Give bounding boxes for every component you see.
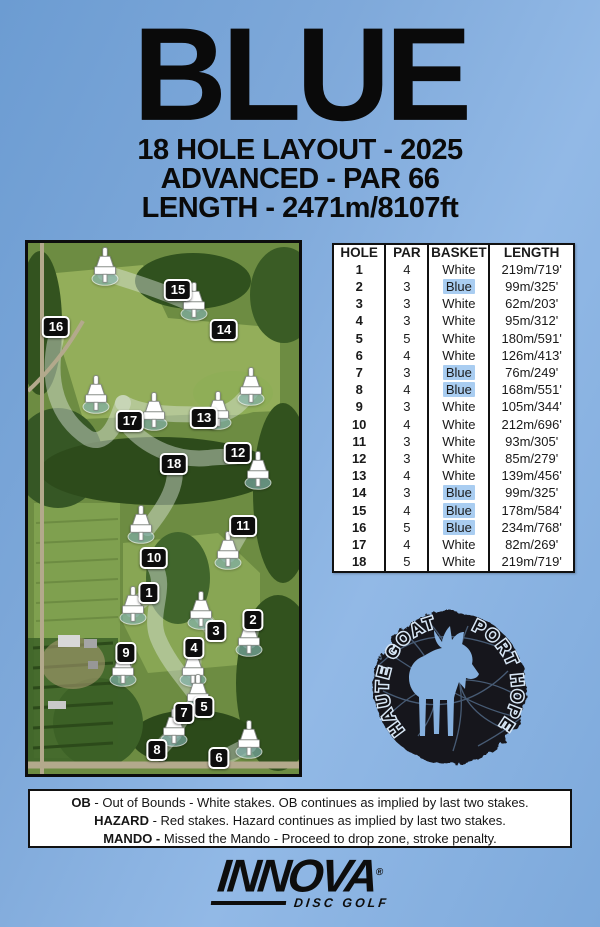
- col-header-length: LENGTH: [489, 245, 573, 262]
- hole-marker: 5: [193, 696, 214, 718]
- cell-basket: White: [428, 433, 489, 450]
- cell-basket: White: [428, 296, 489, 313]
- rule-ob-text: - Out of Bounds - White stakes. OB conti…: [91, 795, 529, 810]
- cell-length: 178m/584': [489, 502, 573, 519]
- hole-marker: 3: [205, 620, 226, 642]
- subtitle-length: LENGTH - 2471m/8107ft: [0, 194, 600, 223]
- cell-hole: 18: [334, 554, 385, 571]
- cell-par: 4: [385, 502, 428, 519]
- basket-icon: [126, 505, 156, 545]
- table-row: 8 4 Blue 168m/551': [334, 382, 573, 399]
- cell-length: 99m/325': [489, 279, 573, 296]
- registered-mark: ®: [375, 867, 384, 878]
- header: BLUE 18 HOLE LAYOUT - 2025 ADVANCED - PA…: [0, 22, 600, 223]
- cell-hole: 5: [334, 330, 385, 347]
- cell-length: 62m/203': [489, 296, 573, 313]
- cell-par: 5: [385, 330, 428, 347]
- poster: BLUE 18 HOLE LAYOUT - 2025 ADVANCED - PA…: [0, 0, 600, 927]
- hole-marker: 4: [183, 637, 204, 659]
- cell-basket: Blue: [428, 365, 489, 382]
- table-row: 15 4 Blue 178m/584': [334, 502, 573, 519]
- cell-par: 4: [385, 348, 428, 365]
- brand-tagline: DISC GOLF: [293, 896, 390, 910]
- hole-marker: 15: [164, 279, 192, 301]
- cell-par: 3: [385, 313, 428, 330]
- hole-marker: 6: [208, 747, 229, 769]
- cell-par: 4: [385, 382, 428, 399]
- cell-hole: 8: [334, 382, 385, 399]
- cell-hole: 2: [334, 279, 385, 296]
- cell-hole: 11: [334, 433, 385, 450]
- table-row: 7 3 Blue 76m/249': [334, 365, 573, 382]
- cell-basket: White: [428, 554, 489, 571]
- table-row: 6 4 White 126m/413': [334, 348, 573, 365]
- hole-marker: 17: [116, 410, 144, 432]
- cell-hole: 3: [334, 296, 385, 313]
- hole-marker: 14: [210, 319, 238, 341]
- hole-marker: 12: [224, 442, 252, 464]
- cell-length: 76m/249': [489, 365, 573, 382]
- col-header-par: PAR: [385, 245, 428, 262]
- subtitle-par: ADVANCED - PAR 66: [0, 165, 600, 194]
- cell-hole: 17: [334, 537, 385, 554]
- cell-par: 3: [385, 296, 428, 313]
- cell-par: 5: [385, 519, 428, 536]
- cell-basket: Blue: [428, 502, 489, 519]
- cell-par: 4: [385, 262, 428, 279]
- col-header-hole: HOLE: [334, 245, 385, 262]
- cell-basket: White: [428, 262, 489, 279]
- cell-par: 3: [385, 399, 428, 416]
- cell-length: 82m/269': [489, 537, 573, 554]
- cell-hole: 6: [334, 348, 385, 365]
- table-row: 18 5 White 219m/719': [334, 554, 573, 571]
- table-header-row: HOLE PAR BASKET LENGTH: [334, 245, 573, 262]
- table-row: 3 3 White 62m/203': [334, 296, 573, 313]
- cell-basket: White: [428, 348, 489, 365]
- table-row: 9 3 White 105m/344': [334, 399, 573, 416]
- map-overlay: 161514171312181110123495786: [28, 243, 299, 774]
- rule-mando-label: MANDO -: [103, 831, 160, 846]
- col-header-basket: BASKET: [428, 245, 489, 262]
- hole-marker: 13: [190, 407, 218, 429]
- rule-hazard-text: - Red stakes. Hazard continues as implie…: [149, 813, 506, 828]
- hole-marker: 11: [229, 515, 257, 537]
- rule-ob-label: OB: [71, 795, 91, 810]
- basket-icon: [234, 720, 264, 760]
- rule-ob: OB - Out of Bounds - White stakes. OB co…: [30, 794, 570, 812]
- goat-logo: HAUTE GOAT PORT HOPE: [358, 596, 543, 781]
- rule-mando-text: Missed the Mando - Proceed to drop zone,…: [160, 831, 497, 846]
- cell-basket: Blue: [428, 382, 489, 399]
- cell-par: 3: [385, 279, 428, 296]
- cell-hole: 16: [334, 519, 385, 536]
- hole-marker: 8: [146, 739, 167, 761]
- table-row: 1 4 White 219m/719': [334, 262, 573, 279]
- rule-hazard-label: HAZARD: [94, 813, 149, 828]
- course-table: HOLE PAR BASKET LENGTH 1 4 White 219m/71…: [332, 243, 575, 573]
- table-row: 12 3 White 85m/279': [334, 451, 573, 468]
- cell-hole: 14: [334, 485, 385, 502]
- cell-hole: 1: [334, 262, 385, 279]
- hole-marker: 9: [115, 642, 136, 664]
- hole-marker: 16: [42, 316, 70, 338]
- cell-length: 212m/696': [489, 416, 573, 433]
- cell-length: 139m/456': [489, 468, 573, 485]
- innova-wordmark: INNOVA®: [215, 853, 384, 895]
- cell-hole: 13: [334, 468, 385, 485]
- cell-basket: White: [428, 313, 489, 330]
- cell-basket: Blue: [428, 279, 489, 296]
- basket-icon: [236, 367, 266, 407]
- cell-hole: 15: [334, 502, 385, 519]
- table-row: 4 3 White 95m/312': [334, 313, 573, 330]
- brand-name: INNOVA: [215, 849, 378, 901]
- hole-marker: 2: [242, 609, 263, 631]
- course-table-body: 1 4 White 219m/719' 2 3 Blue 99m/325' 3 …: [334, 262, 573, 571]
- table-row: 5 5 White 180m/591': [334, 330, 573, 347]
- rule-mando: MANDO - Missed the Mando - Proceed to dr…: [30, 830, 570, 848]
- cell-length: 219m/719': [489, 554, 573, 571]
- table-row: 13 4 White 139m/456': [334, 468, 573, 485]
- cell-length: 126m/413': [489, 348, 573, 365]
- cell-length: 105m/344': [489, 399, 573, 416]
- cell-hole: 9: [334, 399, 385, 416]
- cell-basket: Blue: [428, 485, 489, 502]
- cell-basket: Blue: [428, 519, 489, 536]
- hole-marker: 1: [138, 582, 159, 604]
- cell-length: 219m/719': [489, 262, 573, 279]
- cell-par: 4: [385, 537, 428, 554]
- cell-par: 3: [385, 485, 428, 502]
- table-row: 17 4 White 82m/269': [334, 537, 573, 554]
- cell-hole: 7: [334, 365, 385, 382]
- cell-basket: White: [428, 537, 489, 554]
- cell-basket: White: [428, 416, 489, 433]
- innova-underline: [211, 901, 286, 905]
- basket-icon: [81, 375, 111, 415]
- cell-par: 4: [385, 416, 428, 433]
- cell-hole: 12: [334, 451, 385, 468]
- cell-basket: White: [428, 399, 489, 416]
- cell-par: 3: [385, 365, 428, 382]
- course-map: 161514171312181110123495786: [25, 240, 302, 777]
- cell-length: 234m/768': [489, 519, 573, 536]
- rules-box: OB - Out of Bounds - White stakes. OB co…: [28, 789, 572, 848]
- cell-par: 5: [385, 554, 428, 571]
- rule-hazard: HAZARD - Red stakes. Hazard continues as…: [30, 812, 570, 830]
- cell-length: 95m/312': [489, 313, 573, 330]
- cell-basket: White: [428, 330, 489, 347]
- cell-length: 168m/551': [489, 382, 573, 399]
- table-row: 14 3 Blue 99m/325': [334, 485, 573, 502]
- hole-marker: 7: [173, 702, 194, 724]
- cell-hole: 10: [334, 416, 385, 433]
- page-title: BLUE: [0, 21, 600, 127]
- innova-logo: INNOVA® DISC GOLF: [0, 853, 600, 910]
- table-row: 11 3 White 93m/305': [334, 433, 573, 450]
- basket-icon: [90, 247, 120, 287]
- cell-par: 3: [385, 433, 428, 450]
- cell-length: 93m/305': [489, 433, 573, 450]
- table-row: 2 3 Blue 99m/325': [334, 279, 573, 296]
- table-row: 16 5 Blue 234m/768': [334, 519, 573, 536]
- cell-length: 180m/591': [489, 330, 573, 347]
- cell-length: 99m/325': [489, 485, 573, 502]
- cell-par: 3: [385, 451, 428, 468]
- cell-hole: 4: [334, 313, 385, 330]
- hole-marker: 10: [140, 547, 168, 569]
- cell-basket: White: [428, 468, 489, 485]
- cell-basket: White: [428, 451, 489, 468]
- table-row: 10 4 White 212m/696': [334, 416, 573, 433]
- cell-length: 85m/279': [489, 451, 573, 468]
- hole-marker: 18: [160, 453, 188, 475]
- cell-par: 4: [385, 468, 428, 485]
